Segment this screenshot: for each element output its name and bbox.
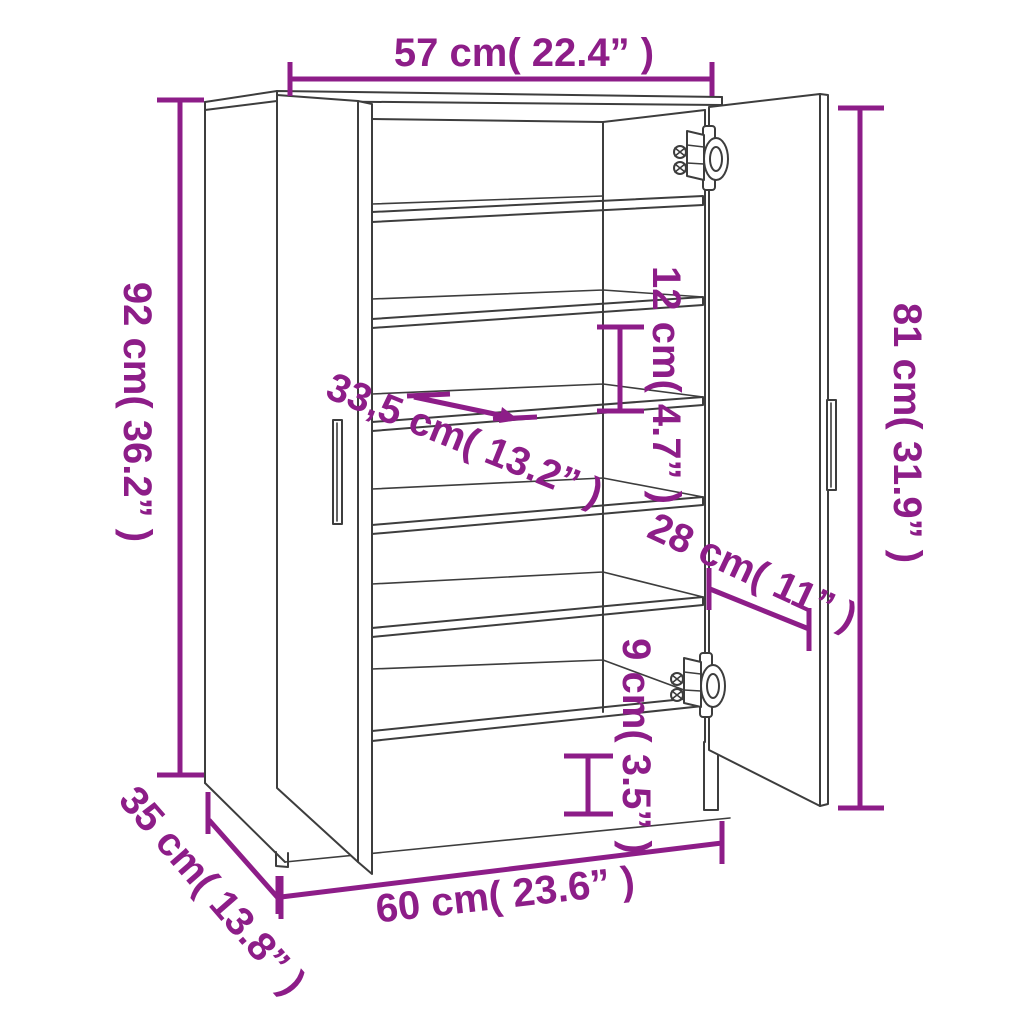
dimension-depth: 35 cm( 13.8” ) <box>110 778 314 1003</box>
dimension-ground-clearance: 9 cm( 3.5” ) <box>564 638 658 854</box>
dimension-right-height-label: 81 cm( 31.9” ) <box>885 303 929 563</box>
cabinet-left-side-panel <box>205 110 285 862</box>
dimension-left-height: 92 cm( 36.2” ) <box>115 100 204 775</box>
right-door <box>709 94 836 806</box>
dimension-left-height-label: 92 cm( 36.2” ) <box>115 282 159 542</box>
diagram-canvas: 57 cm( 22.4” ) 92 cm( 36.2” ) 81 cm( 31.… <box>0 0 1024 1024</box>
dimension-right-height: 81 cm( 31.9” ) <box>838 108 929 808</box>
dimension-top-width-label: 57 cm( 22.4” ) <box>394 31 654 75</box>
dimension-shelf-gap-label: 12 cm( 4.7” ) <box>644 266 688 504</box>
shelf-5 <box>372 572 703 637</box>
left-door <box>277 95 372 874</box>
right-door-handle-icon <box>827 400 836 490</box>
shelf-1 <box>372 196 703 222</box>
left-door-handle-icon <box>333 420 342 524</box>
dimension-ground-clearance-label: 9 cm( 3.5” ) <box>614 638 658 854</box>
product-dimension-diagram: 57 cm( 22.4” ) 92 cm( 36.2” ) 81 cm( 31.… <box>0 0 1024 1024</box>
dimension-top-width: 57 cm( 22.4” ) <box>290 31 712 96</box>
dimension-depth-label: 35 cm( 13.8” ) <box>110 778 314 1003</box>
